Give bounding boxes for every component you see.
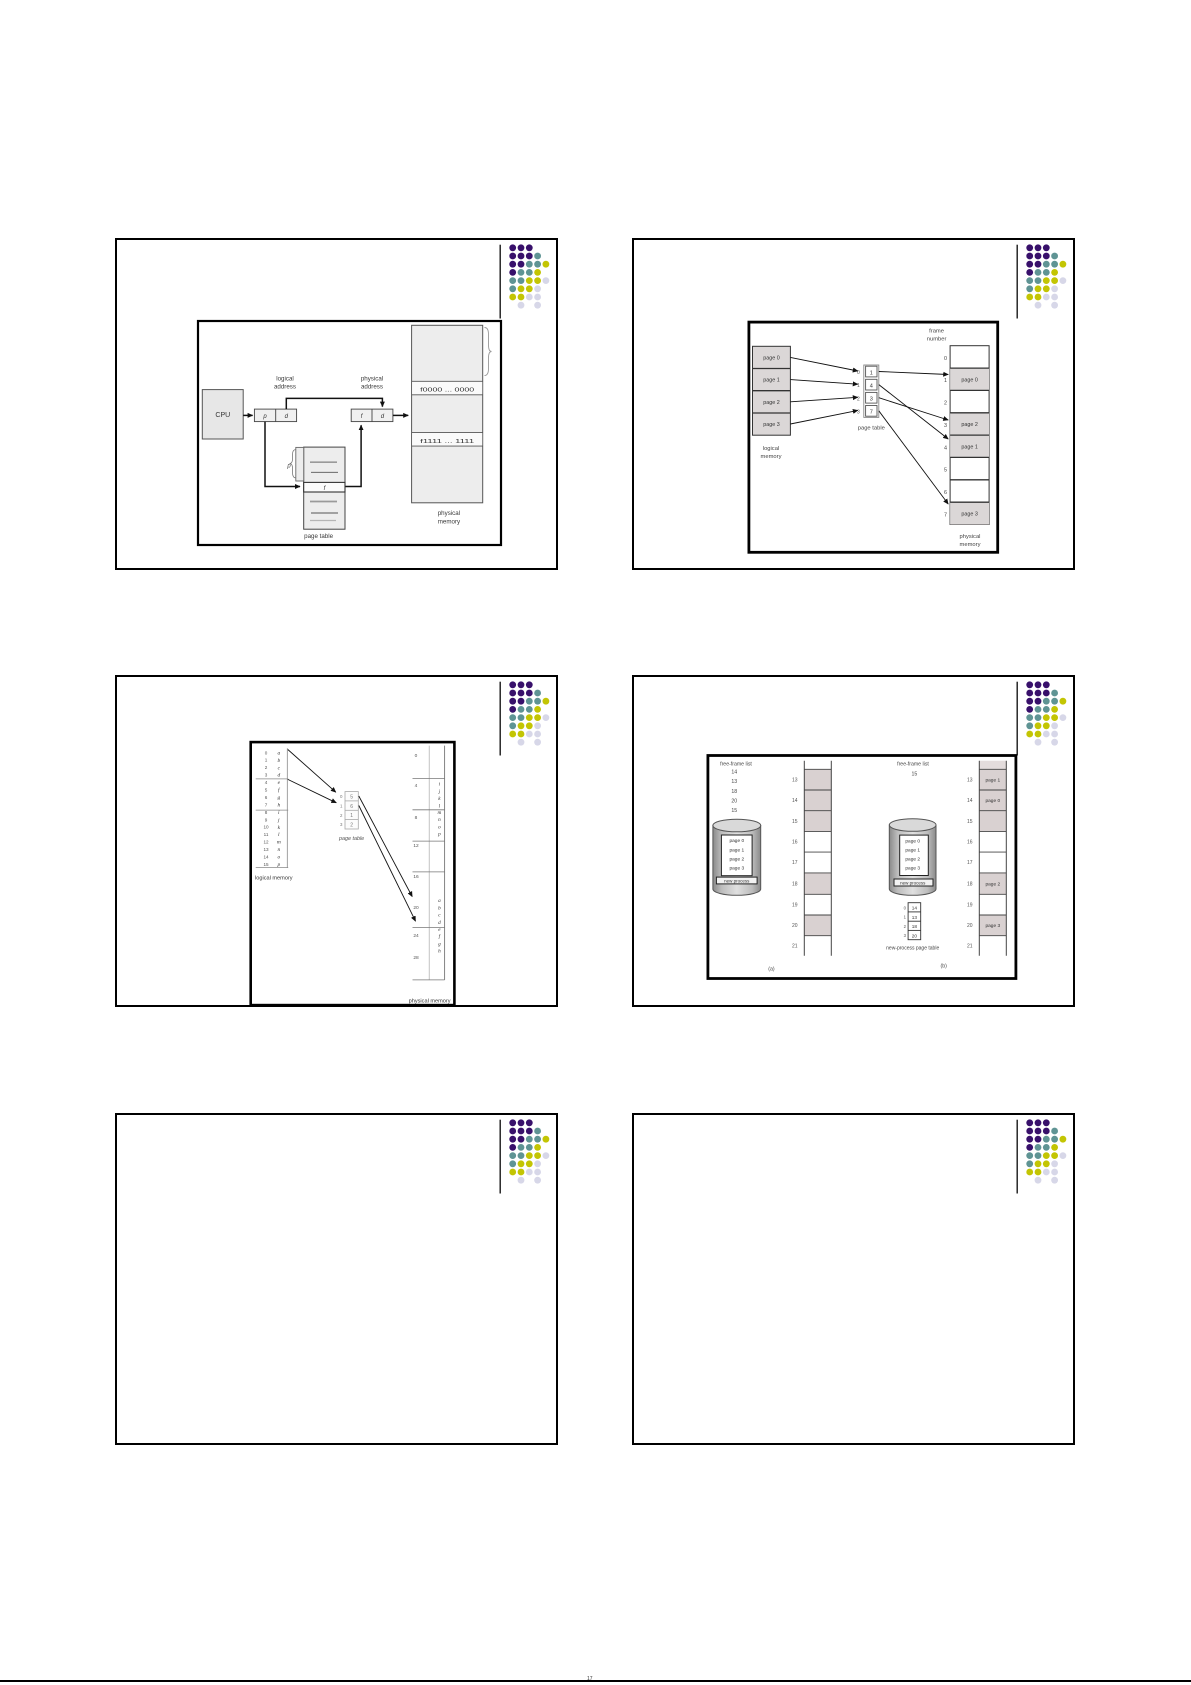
svg-text:8: 8 xyxy=(415,815,418,821)
svg-text:21: 21 xyxy=(792,943,798,949)
svg-text:p: p xyxy=(437,832,441,838)
svg-text:page 3: page 3 xyxy=(763,422,780,428)
svg-text:14: 14 xyxy=(792,798,798,804)
svg-text:18: 18 xyxy=(967,881,973,887)
svg-text:o: o xyxy=(277,855,280,861)
svg-text:13: 13 xyxy=(263,847,269,852)
svg-text:page 2: page 2 xyxy=(961,422,978,428)
svg-text:28: 28 xyxy=(413,955,419,961)
svg-text:page 1: page 1 xyxy=(985,778,1000,784)
svg-text:3: 3 xyxy=(944,423,947,429)
svg-text:24: 24 xyxy=(413,933,419,939)
svg-text:CPU: CPU xyxy=(215,412,230,419)
svg-text:page table: page table xyxy=(304,533,333,540)
svg-text:19: 19 xyxy=(792,902,798,908)
svg-text:13: 13 xyxy=(912,915,918,920)
svg-text:7: 7 xyxy=(870,410,873,416)
svg-text:17: 17 xyxy=(792,860,798,866)
svg-text:6: 6 xyxy=(350,804,353,810)
svg-text:logical memory: logical memory xyxy=(255,876,293,882)
svg-text:d: d xyxy=(438,920,441,926)
svg-text:20: 20 xyxy=(413,905,419,911)
svg-text:15: 15 xyxy=(731,808,737,814)
svg-text:address: address xyxy=(274,384,296,391)
svg-text:14: 14 xyxy=(731,769,737,775)
svg-text:17: 17 xyxy=(967,860,973,866)
svg-text:page 3: page 3 xyxy=(729,866,744,872)
svg-text:a: a xyxy=(438,898,441,904)
svg-text:n: n xyxy=(277,847,280,853)
svg-text:4: 4 xyxy=(415,783,418,789)
svg-text:page 0: page 0 xyxy=(729,838,744,844)
svg-text:20: 20 xyxy=(967,923,973,929)
svg-text:(a): (a) xyxy=(768,967,775,973)
svg-text:physical memory: physical memory xyxy=(409,999,451,1005)
svg-text:0: 0 xyxy=(265,750,268,755)
svg-text:0: 0 xyxy=(415,753,418,759)
svg-text:2: 2 xyxy=(350,822,353,828)
svg-text:new process: new process xyxy=(724,878,750,883)
svg-text:11: 11 xyxy=(264,832,269,837)
svg-text:logical: logical xyxy=(276,376,294,383)
svg-text:f1111 ... 1111: f1111 ... 1111 xyxy=(420,439,474,445)
svg-text:13: 13 xyxy=(967,777,973,783)
svg-text:15: 15 xyxy=(792,819,798,825)
svg-text:page 0: page 0 xyxy=(985,798,1000,804)
svg-text:4: 4 xyxy=(870,383,873,389)
svg-text:2: 2 xyxy=(265,765,268,770)
svg-text:16: 16 xyxy=(792,839,798,845)
svg-text:page 0: page 0 xyxy=(763,356,780,362)
svg-text:page 1: page 1 xyxy=(729,847,744,853)
svg-text:15: 15 xyxy=(912,771,918,777)
svg-text:h: h xyxy=(438,949,441,955)
svg-text:3: 3 xyxy=(265,773,268,778)
svg-text:logical: logical xyxy=(763,446,779,452)
svg-text:14: 14 xyxy=(967,798,973,804)
svg-text:p: p xyxy=(276,862,280,868)
svg-text:page table: page table xyxy=(858,426,885,432)
svg-text:7: 7 xyxy=(265,802,268,807)
svg-text:13: 13 xyxy=(792,777,798,783)
svg-text:13: 13 xyxy=(731,779,737,785)
svg-text:physical: physical xyxy=(960,534,981,540)
svg-text:4: 4 xyxy=(944,445,947,451)
svg-text:d: d xyxy=(277,773,280,779)
svg-text:(b): (b) xyxy=(941,964,948,970)
svg-text:14: 14 xyxy=(263,855,269,860)
svg-text:h: h xyxy=(277,803,280,809)
svg-text:memory: memory xyxy=(761,454,782,460)
svg-text:15: 15 xyxy=(967,819,973,825)
svg-text:free-frame list: free-frame list xyxy=(720,762,752,768)
svg-text:p: p xyxy=(262,414,267,420)
svg-text:2: 2 xyxy=(944,401,947,407)
svg-text:16: 16 xyxy=(967,839,973,845)
svg-text:20: 20 xyxy=(792,923,798,929)
svg-text:0: 0 xyxy=(944,356,947,362)
svg-text:n: n xyxy=(438,817,441,823)
svg-text:18: 18 xyxy=(912,924,918,929)
svg-text:page 0: page 0 xyxy=(961,377,978,383)
svg-text:page 1: page 1 xyxy=(763,378,780,384)
svg-text:1: 1 xyxy=(265,758,268,763)
svg-text:page 3: page 3 xyxy=(905,866,920,872)
svg-text:16: 16 xyxy=(413,874,419,880)
svg-text:14: 14 xyxy=(912,906,918,911)
svg-text:page 2: page 2 xyxy=(729,856,744,862)
svg-text:a: a xyxy=(277,750,280,756)
svg-text:15: 15 xyxy=(263,862,269,867)
svg-text:5: 5 xyxy=(350,794,353,800)
svg-text:4: 4 xyxy=(265,780,268,785)
svg-text:g: g xyxy=(277,795,280,801)
svg-text:page 1: page 1 xyxy=(961,444,978,450)
svg-text:19: 19 xyxy=(967,902,973,908)
svg-text:b: b xyxy=(438,905,441,911)
svg-text:12: 12 xyxy=(263,840,269,845)
svg-text:physical: physical xyxy=(438,510,460,517)
svg-text:m: m xyxy=(438,810,442,816)
svg-text:page 3: page 3 xyxy=(985,923,1000,929)
svg-text:1: 1 xyxy=(944,378,947,384)
svg-text:6: 6 xyxy=(265,795,268,800)
svg-text:page 3: page 3 xyxy=(961,512,978,518)
svg-text:address: address xyxy=(361,384,383,391)
svg-text:new-process page table: new-process page table xyxy=(886,946,939,952)
svg-text:o: o xyxy=(438,824,441,830)
svg-text:memory: memory xyxy=(960,542,981,548)
svg-text:6: 6 xyxy=(944,490,947,496)
svg-text:number: number xyxy=(927,337,947,343)
svg-text:12: 12 xyxy=(413,843,419,849)
svg-text:21: 21 xyxy=(967,943,973,949)
svg-text:1: 1 xyxy=(870,370,873,376)
svg-text:5: 5 xyxy=(265,788,268,793)
svg-text:physical: physical xyxy=(361,376,383,383)
svg-text:b: b xyxy=(277,758,280,764)
svg-text:page 2: page 2 xyxy=(905,857,920,863)
svg-text:page 1: page 1 xyxy=(905,847,920,853)
svg-text:page 2: page 2 xyxy=(985,881,1000,887)
svg-text:18: 18 xyxy=(792,881,798,887)
svg-text:18: 18 xyxy=(731,789,737,795)
svg-text:1: 1 xyxy=(350,813,353,819)
svg-text:m: m xyxy=(277,840,281,846)
svg-text:frame: frame xyxy=(929,329,944,335)
svg-text:page table: page table xyxy=(338,836,364,842)
svg-text:memory: memory xyxy=(438,519,461,526)
svg-text:3: 3 xyxy=(870,397,873,403)
svg-text:20: 20 xyxy=(731,799,737,805)
svg-text:f0000 ... 0000: f0000 ... 0000 xyxy=(420,387,474,393)
svg-text:page 0: page 0 xyxy=(905,838,920,844)
svg-text:20: 20 xyxy=(912,933,918,938)
svg-text:9: 9 xyxy=(265,817,268,822)
svg-text:new process: new process xyxy=(900,880,926,885)
svg-text:8: 8 xyxy=(265,810,268,815)
svg-text:g: g xyxy=(438,941,441,947)
svg-text:p: p xyxy=(286,464,291,470)
svg-text:free-frame list: free-frame list xyxy=(897,762,929,768)
svg-text:7: 7 xyxy=(944,512,947,518)
svg-text:5: 5 xyxy=(944,468,947,474)
svg-text:10: 10 xyxy=(263,825,269,830)
svg-text:page 2: page 2 xyxy=(763,400,780,406)
